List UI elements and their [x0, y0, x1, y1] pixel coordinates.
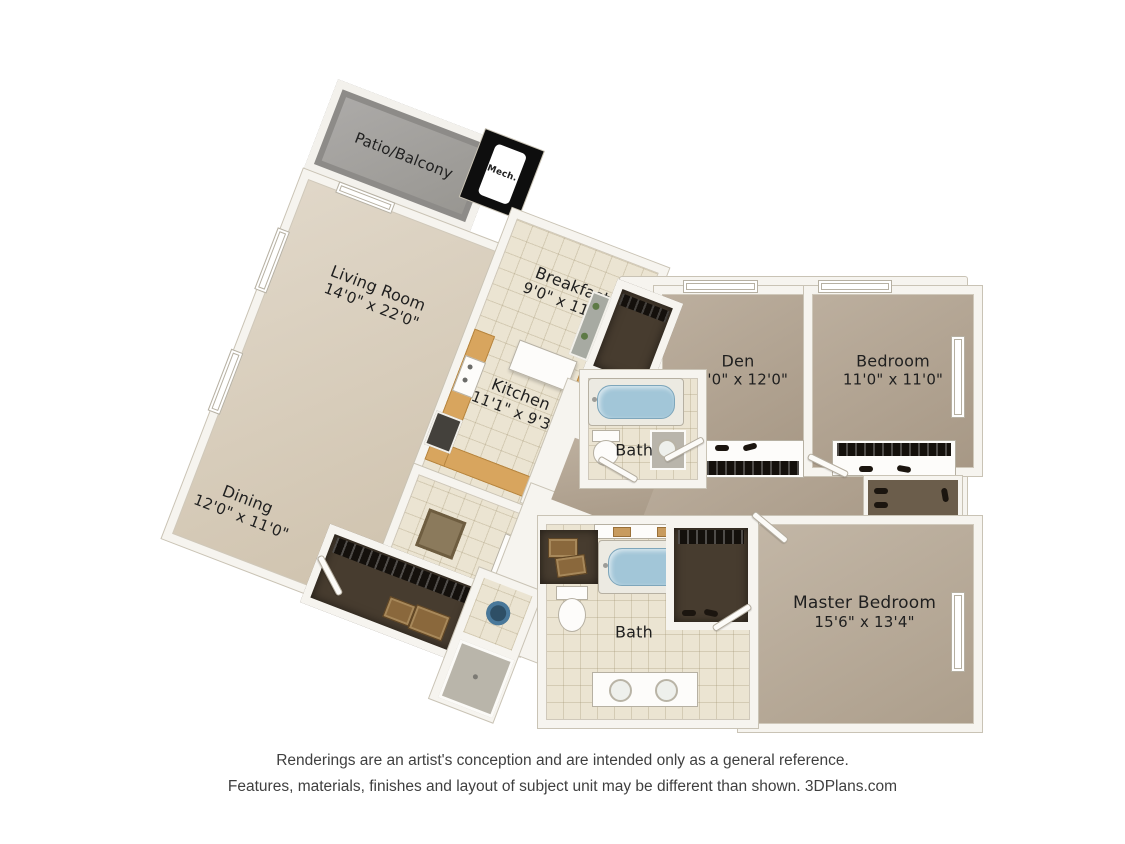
closet-clothes-icon: [678, 530, 744, 544]
window: [818, 280, 892, 293]
disclaimer-line-2: Features, materials, finishes and layout…: [0, 778, 1125, 796]
bathtub-icon: [588, 378, 684, 426]
bucket-icon: [483, 598, 514, 629]
master-bedroom-room: Master Bedroom 15'6" x 13'4": [738, 516, 982, 732]
shower-icon: [438, 639, 514, 718]
room-label-bedroom: Bedroom 11'0" x 11'0": [843, 351, 943, 388]
upper-bath: Bath: [580, 370, 706, 488]
rug: [415, 508, 467, 560]
room-label-master-bedroom: Master Bedroom 15'6" x 13'4": [793, 593, 936, 631]
closet-clothes-icon: [619, 293, 670, 322]
floor-plan-canvas: Patio/Balcony Mech. Living Room 14'0" x …: [0, 0, 1125, 844]
sink-icon: [609, 679, 632, 702]
window: [951, 336, 965, 418]
double-vanity: [592, 672, 698, 707]
closet-clothes-icon: [707, 461, 799, 475]
room-label-patio: Patio/Balcony: [352, 129, 455, 183]
room-label-dining: Dining 12'0" x 11'0": [191, 473, 298, 544]
toilet-icon: [556, 586, 588, 632]
crate-icon: [555, 554, 587, 578]
den-closet: [702, 440, 804, 478]
room-label-master-bath: Bath: [615, 622, 653, 641]
disclaimer-line-1: Renderings are an artist's conception an…: [0, 752, 1125, 770]
room-label-upper-bath: Bath: [615, 440, 653, 459]
basket-icon: [613, 527, 631, 537]
window: [951, 592, 965, 672]
plant-icon: [591, 302, 600, 311]
utility-room: [463, 578, 532, 651]
window: [254, 227, 290, 293]
plant-icon: [580, 332, 589, 341]
bedroom-closet: [832, 440, 956, 476]
storage-closet: [540, 530, 598, 584]
window: [683, 280, 758, 293]
sink-icon: [655, 679, 678, 702]
closet-clothes-icon: [837, 443, 951, 456]
room-label-living-room: Living Room 14'0" x 22'0": [321, 261, 428, 332]
window: [208, 349, 244, 415]
